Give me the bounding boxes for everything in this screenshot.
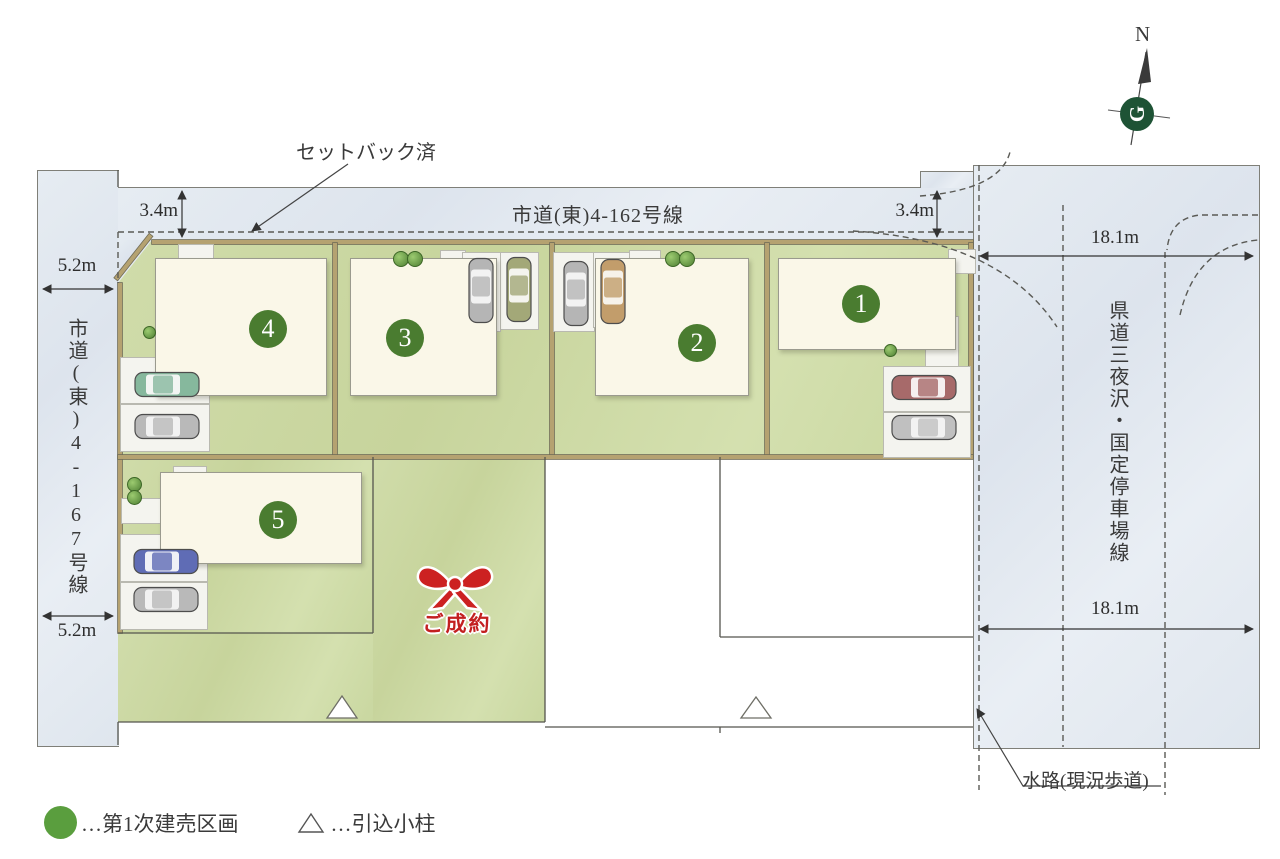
dim-setback-right: 3.4m [884, 200, 934, 222]
ribbon-icon [413, 558, 497, 612]
car-icon [133, 586, 199, 613]
car-icon [891, 374, 957, 401]
tree-icon [143, 326, 156, 339]
sold-label: ご成約 [408, 608, 506, 638]
car-icon [600, 259, 627, 325]
compass-logo-letter: G [1125, 106, 1150, 122]
dim-left-road-top: 5.2m [44, 255, 110, 277]
road-top-step [920, 171, 974, 188]
legend-pole-marker-label: …引込小柱 [331, 808, 436, 838]
tree-icon [884, 344, 897, 357]
dim-right-road-bottom: 18.1m [1080, 598, 1150, 620]
lot-number-1: 1 [842, 285, 880, 323]
car-icon [506, 257, 533, 323]
pole-triangle [741, 697, 771, 718]
lot-number-3: 3 [386, 319, 424, 357]
parking-pad [121, 498, 163, 524]
legend-pole-marker-icon [297, 811, 325, 835]
road-left-label: 市道(東)4-167号線 [62, 318, 91, 596]
setback-label: セットバック済 [296, 136, 436, 165]
lot-number-2: 2 [678, 324, 716, 362]
divider-lot2-lot1 [765, 243, 769, 455]
road-top-label: 市道(東)4-162号線 [512, 199, 684, 228]
dim-left-road-bottom: 5.2m [44, 620, 110, 642]
lot-number-1-label: 1 [855, 289, 868, 319]
lot-number-2-label: 2 [691, 328, 704, 358]
dim-right-road-top: 18.1m [1080, 227, 1150, 249]
dim-setback-left: 3.4m [128, 200, 178, 222]
compass-logo: G [1120, 97, 1154, 131]
car-icon [468, 258, 495, 324]
boundary-top [152, 240, 973, 244]
tree-icon [127, 490, 142, 505]
lot-number-3-label: 3 [399, 323, 412, 353]
lot-number-4: 4 [249, 310, 287, 348]
parcel-sold-lower [118, 633, 373, 722]
waterway-label: 水路(現況歩道) [1022, 766, 1149, 793]
road-right-label: 県道三夜沢・国定停車場線 [1103, 300, 1132, 564]
lot-number-5-label: 5 [272, 505, 285, 535]
car-icon [133, 548, 199, 575]
lot-number-4-label: 4 [262, 314, 275, 344]
car-icon [563, 261, 590, 327]
tree-icon [407, 251, 423, 267]
site-plan-canvas: 1 2 3 4 5 ご成約 市道(東)4-162号線 市道(東)4-167号線 … [0, 0, 1280, 859]
car-icon [134, 371, 200, 398]
car-icon [891, 414, 957, 441]
compass-north-label: N [1135, 22, 1150, 47]
car-icon [134, 413, 200, 440]
legend: …第1次建売区画 …引込小柱 [44, 806, 436, 839]
divider-row [118, 455, 973, 459]
legend-lot-marker-icon [44, 806, 77, 839]
lot-number-5: 5 [259, 501, 297, 539]
tree-icon [679, 251, 695, 267]
legend-lot-marker-label: …第1次建売区画 [81, 808, 239, 838]
divider-lot4-lot3 [333, 243, 337, 455]
